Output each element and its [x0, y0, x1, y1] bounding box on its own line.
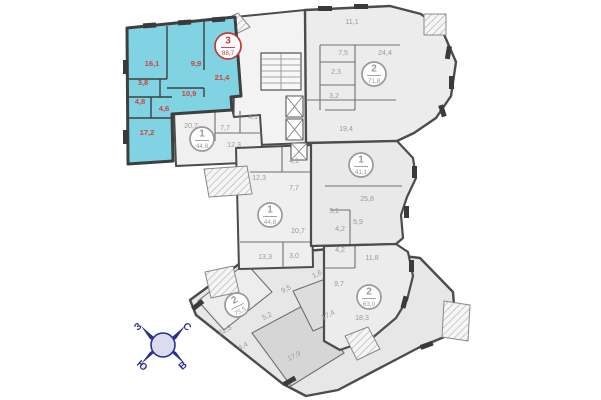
room-area-label: 3,2	[329, 92, 339, 100]
floorplan-svg: 16,19,921,43,810,94,84,617,211,17,524,42…	[0, 0, 601, 400]
room-area-label: 19,4	[339, 125, 353, 133]
apartment-badge[interactable]: 271,8	[362, 62, 386, 86]
room-area-label: 12,3	[252, 174, 266, 182]
badge-room-count: 3	[225, 36, 231, 47]
badge-area: 41,1	[355, 169, 368, 176]
room-area-label: 20,7	[291, 227, 305, 235]
room-area-label: 4,2	[335, 225, 345, 233]
room-area-label: 7,7	[289, 184, 299, 192]
room-area-label: 4,6	[159, 104, 170, 113]
room-area-label: 10,9	[182, 89, 197, 98]
room-area-label: 9,7	[334, 280, 344, 288]
room-area-label: 5,9	[353, 218, 363, 226]
room-area-label: 16,1	[145, 59, 161, 68]
badge-area: 44,8	[264, 219, 277, 226]
badge-area: 44,8	[196, 143, 209, 150]
room-area-label: 13,3	[258, 253, 272, 261]
badge-area: 88,7	[222, 50, 235, 57]
room-area-label: 11,1	[345, 18, 358, 26]
room-area-label: 4,2	[335, 246, 345, 254]
apartment-badge[interactable]: 144,8	[258, 203, 282, 227]
room-area-label: 21,4	[215, 73, 231, 82]
apartment-badge[interactable]: 144,8	[190, 127, 214, 151]
room-area-label: 7,7	[220, 124, 230, 132]
apartment-badge[interactable]: 141,1	[349, 153, 373, 177]
badge-area: 71,8	[368, 78, 381, 85]
badge-room-count: 1	[267, 205, 273, 216]
room-area-label: 4,1	[248, 113, 258, 121]
badge-area: 63,0	[363, 301, 376, 308]
compass-letter: З	[132, 321, 144, 333]
room-area-label: 18,3	[355, 314, 369, 322]
badge-room-count: 1	[199, 129, 205, 140]
badge-room-count: 2	[371, 64, 377, 75]
room-area-label: 3,8	[138, 78, 149, 87]
room-area-label: 11,8	[365, 254, 378, 262]
compass-rose: СЗЮВ	[132, 321, 193, 374]
apartment-badge[interactable]: 263,0	[357, 285, 381, 309]
room-area-label: 24,4	[378, 49, 392, 57]
compass-letter: С	[180, 321, 193, 334]
room-area-label: 4,8	[135, 97, 146, 106]
room-area-label: 2,3	[331, 68, 341, 76]
badge-room-count: 1	[358, 155, 364, 166]
room-area-label: 25,8	[360, 195, 374, 203]
room-area-label: 4,1	[289, 157, 299, 165]
room-area-label: 3,0	[289, 252, 299, 260]
compass-letter: Ю	[134, 359, 149, 374]
badge-room-count: 2	[366, 287, 372, 298]
floorplan-page: 16,19,921,43,810,94,84,617,211,17,524,42…	[0, 0, 601, 400]
room-area-label: 7,5	[338, 49, 348, 57]
room-area-label: 17,2	[140, 128, 155, 137]
room-area-label: 3,1	[329, 207, 339, 215]
compass-letter: В	[177, 360, 190, 373]
room-area-label: 12,3	[227, 141, 241, 149]
compass-hub	[151, 333, 175, 357]
apartment-badge[interactable]: 388,7	[215, 33, 241, 59]
room-area-label: 9,9	[191, 59, 202, 68]
